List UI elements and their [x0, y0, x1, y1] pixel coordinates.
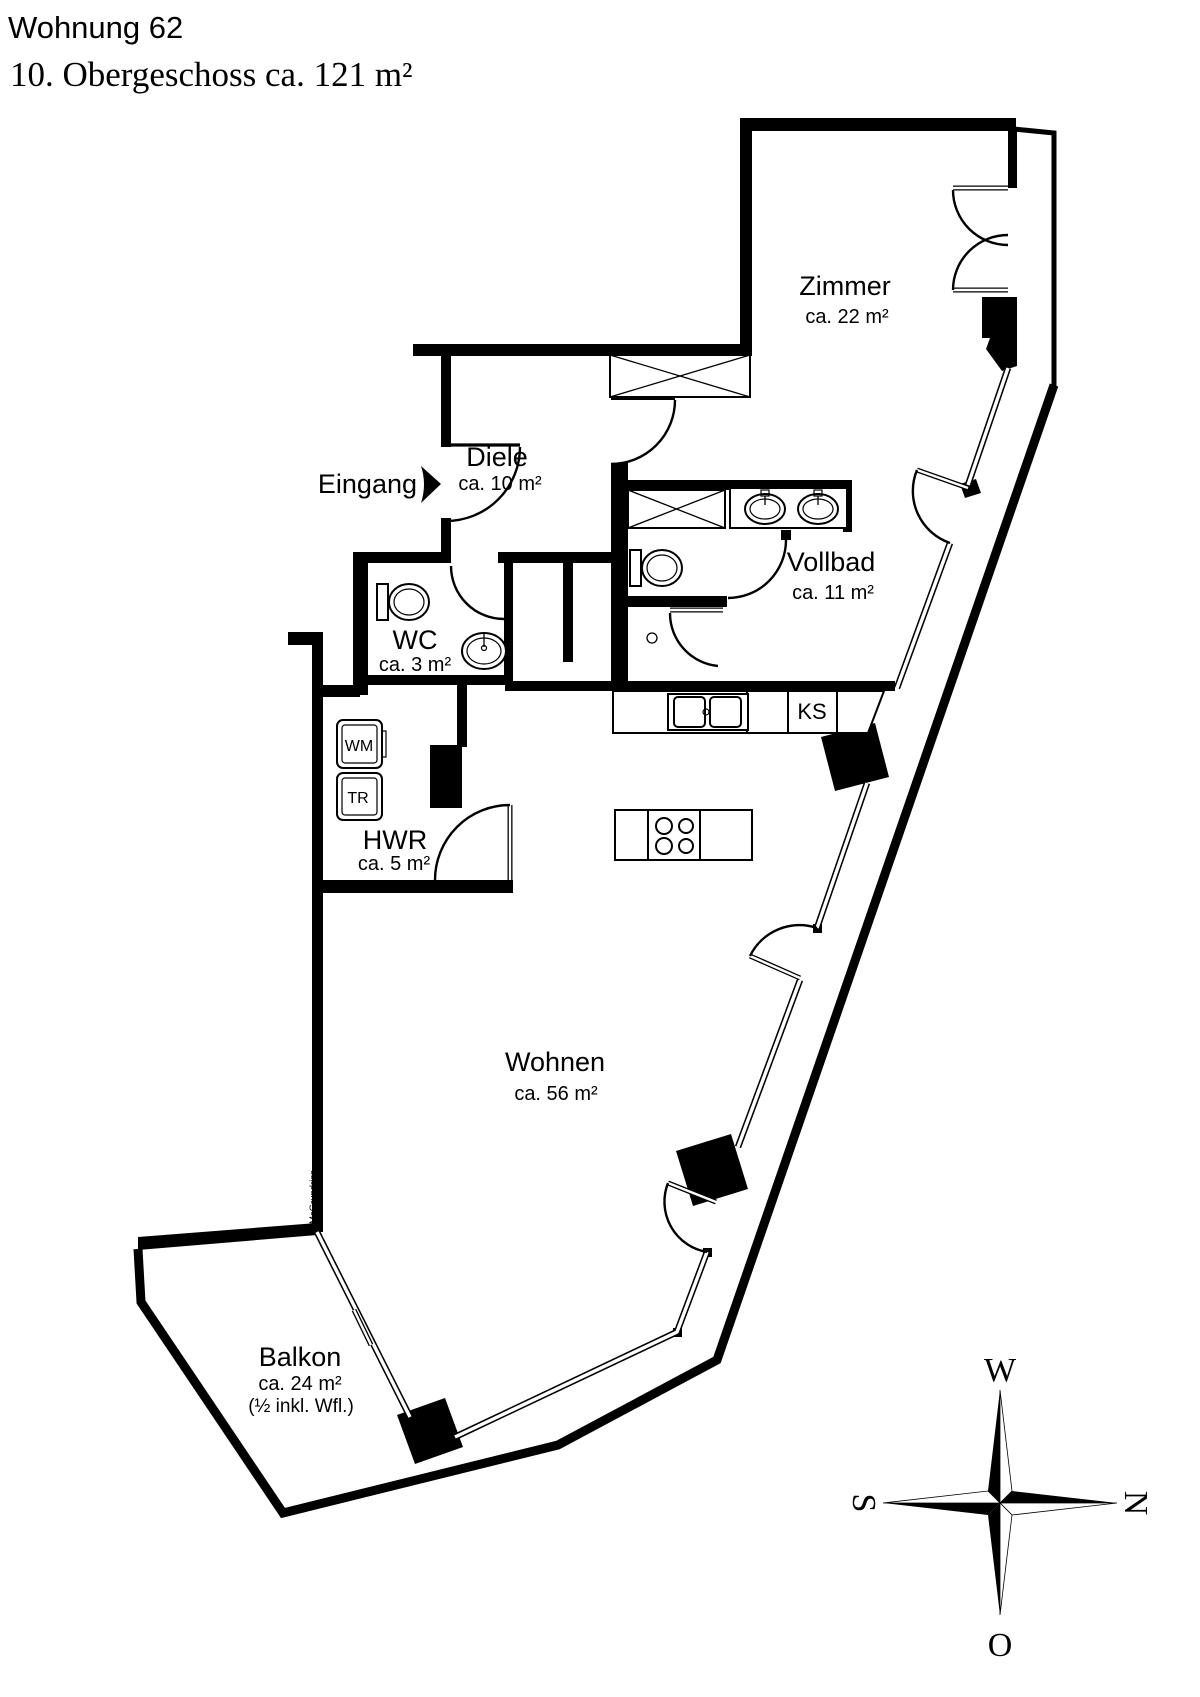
wall-wc-left — [353, 562, 368, 695]
compass-arm-w-white — [1000, 1390, 1012, 1503]
wall-wc-top-right — [498, 552, 611, 563]
shower-door — [670, 610, 723, 666]
vollbad-door — [728, 540, 786, 598]
vollbad-vanity — [730, 488, 847, 528]
room-label-hwr: HWR ca. 5 m² — [358, 825, 431, 875]
window-zimmer-east — [968, 368, 1008, 485]
compass-arm-o-black — [988, 1503, 1000, 1615]
hwr-area: ca. 5 m² — [358, 853, 431, 875]
vollbad-name: Vollbad — [787, 547, 876, 577]
wall-entry-lower — [441, 518, 451, 555]
wall-hwr-right — [457, 685, 467, 747]
entrance-marker: Eingang — [318, 466, 441, 503]
kitchen-counter — [613, 691, 884, 733]
wall-zimmer-left — [740, 118, 752, 354]
wohnen-area: ca. 56 m² — [514, 1083, 598, 1105]
wc-name: WC — [393, 625, 438, 655]
wall-zimmer-door-head — [1008, 131, 1017, 188]
diele-name: Diele — [466, 442, 528, 472]
window-wohnen-east-2 — [738, 980, 800, 1147]
wall-balcony-top — [138, 1223, 317, 1250]
header: Wohnung 62 10. Obergeschoss ca. 121 m² — [8, 10, 413, 94]
wall-wc-right — [504, 552, 513, 685]
room-labels: Zimmer ca. 22 m² Diele ca. 10 m² Vollbad… — [248, 271, 891, 1417]
wc-area: ca. 3 m² — [379, 654, 452, 676]
wall-wc-top-left — [353, 552, 451, 563]
wall-duct — [563, 552, 573, 662]
room-label-diele: Diele ca. 10 m² — [458, 442, 542, 495]
pillar-zimmer — [982, 297, 1017, 338]
balkon-note: (½ inkl. Wfl.) — [248, 1396, 354, 1417]
zimmer-double-door — [953, 188, 1008, 290]
window-wohnen-east-1 — [817, 783, 867, 928]
dryer: TR — [337, 773, 382, 820]
compass-arm-s-black — [883, 1503, 1000, 1515]
wall-entry-stub — [288, 632, 312, 645]
diele-passage-door — [611, 399, 675, 464]
compass-east-label: O — [988, 1627, 1013, 1664]
wall-kitchen-top — [505, 681, 895, 691]
dryer-label: TR — [347, 790, 368, 807]
washing-machine-label: WM — [345, 738, 373, 755]
compass-west-label: W — [984, 1352, 1017, 1389]
zimmer-area: ca. 22 m² — [805, 306, 889, 328]
compass-north-label: N — [1117, 1491, 1154, 1516]
floorplan-page: Wohnung 62 10. Obergeschoss ca. 121 m² — [0, 0, 1200, 1697]
room-label-zimmer: Zimmer ca. 22 m² — [799, 271, 890, 328]
zimmer-balcony-door — [913, 470, 968, 543]
window-kitchen-east — [897, 543, 950, 688]
wohnen-balcony-door-1 — [750, 925, 817, 978]
wall-wc-bottom — [368, 675, 512, 685]
balkon-name: Balkon — [259, 1342, 342, 1372]
watermark: McGrundriss — [308, 1170, 319, 1224]
vollbad-area: ca. 11 m² — [792, 582, 874, 604]
window-wohnen-south — [455, 1252, 707, 1437]
hwr-pillar — [430, 745, 462, 808]
shower-drain — [647, 633, 657, 643]
wall-toilet-partition — [628, 596, 727, 607]
wc-sink — [462, 633, 506, 669]
wohnen-name: Wohnen — [505, 1047, 605, 1077]
shaft-diele — [610, 355, 750, 397]
compass-arm-n-white — [1000, 1503, 1117, 1515]
diele-area: ca. 10 m² — [458, 473, 542, 495]
pillar-zimmer-lower — [986, 338, 1017, 371]
compass-south-label: S — [845, 1494, 882, 1513]
compass-arm-o-white — [1000, 1503, 1012, 1615]
wall-zimmer-top — [740, 118, 1016, 131]
washing-machine: WM — [337, 720, 386, 768]
vollbad-toilet — [630, 550, 682, 586]
compass-rose: W N S O — [845, 1352, 1154, 1664]
wall-west-exterior — [312, 632, 323, 1232]
compass-arm-w-black — [988, 1390, 1000, 1503]
entrance-label: Eingang — [318, 469, 417, 499]
entrance-arrow-icon — [421, 466, 441, 503]
kitchen-island — [615, 810, 752, 860]
hwr-door — [435, 805, 510, 880]
fridge-label: KS — [797, 699, 826, 724]
wc-door — [451, 566, 504, 619]
room-label-vollbad: Vollbad ca. 11 m² — [787, 547, 876, 604]
compass-arm-s-white — [883, 1491, 1000, 1503]
page-subtitle: 10. Obergeschoss ca. 121 m² — [10, 55, 413, 94]
room-label-wc: WC ca. 3 m² — [379, 625, 452, 676]
wall-entry-upper — [441, 356, 451, 447]
room-label-wohnen: Wohnen ca. 56 m² — [505, 1047, 605, 1105]
wall-door-stub — [781, 530, 791, 540]
wall-hwr-bottom — [312, 880, 513, 893]
wc-toilet — [377, 584, 429, 620]
balkon-area: ca. 24 m² — [258, 1373, 342, 1395]
balcony-outer-edge — [138, 129, 1054, 1513]
page-title: Wohnung 62 — [8, 10, 183, 45]
compass-arm-n-black — [1000, 1491, 1117, 1503]
hwr-name: HWR — [363, 825, 427, 855]
room-label-balkon: Balkon ca. 24 m² (½ inkl. Wfl.) — [248, 1342, 354, 1417]
wall-bath-left — [611, 463, 628, 683]
shaft-vollbad — [628, 490, 725, 528]
floorplan-drawing: Wohnung 62 10. Obergeschoss ca. 121 m² — [0, 0, 1200, 1697]
facade-upper-edge — [1014, 129, 1054, 389]
zimmer-name: Zimmer — [799, 271, 890, 301]
